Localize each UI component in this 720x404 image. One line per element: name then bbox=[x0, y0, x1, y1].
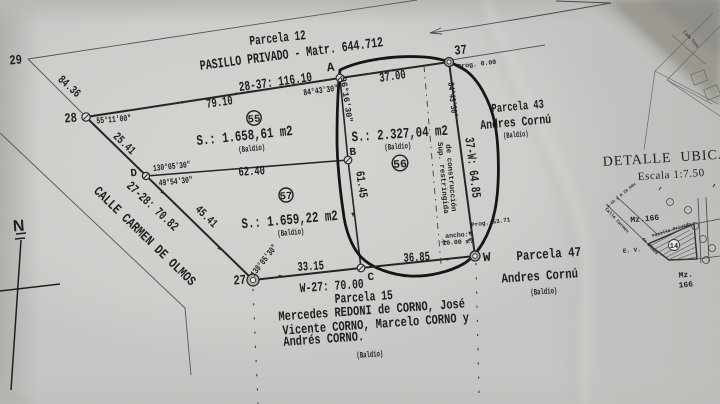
svg-text:57: 57 bbox=[279, 190, 293, 203]
svg-text:(Baldío): (Baldío) bbox=[530, 287, 557, 298]
svg-text:33.15: 33.15 bbox=[297, 260, 325, 276]
svg-text:14: 14 bbox=[670, 243, 678, 251]
svg-text:27: 27 bbox=[233, 272, 247, 288]
svg-text:55: 55 bbox=[247, 113, 261, 126]
svg-text:37: 37 bbox=[454, 42, 468, 59]
svg-text:29: 29 bbox=[9, 52, 23, 69]
svg-text:28: 28 bbox=[64, 110, 78, 127]
svg-text:62.40: 62.40 bbox=[238, 165, 266, 181]
svg-text:Mz.: Mz. bbox=[678, 270, 693, 280]
svg-text:W: W bbox=[482, 250, 491, 266]
svg-text:56: 56 bbox=[393, 158, 408, 172]
svg-text:(Baldío): (Baldío) bbox=[384, 142, 411, 153]
svg-text:(Baldío): (Baldío) bbox=[356, 350, 383, 361]
svg-text:36.85: 36.85 bbox=[403, 251, 431, 267]
svg-text:C: C bbox=[367, 272, 375, 284]
svg-text:N: N bbox=[12, 218, 25, 236]
svg-text:166: 166 bbox=[678, 280, 693, 290]
